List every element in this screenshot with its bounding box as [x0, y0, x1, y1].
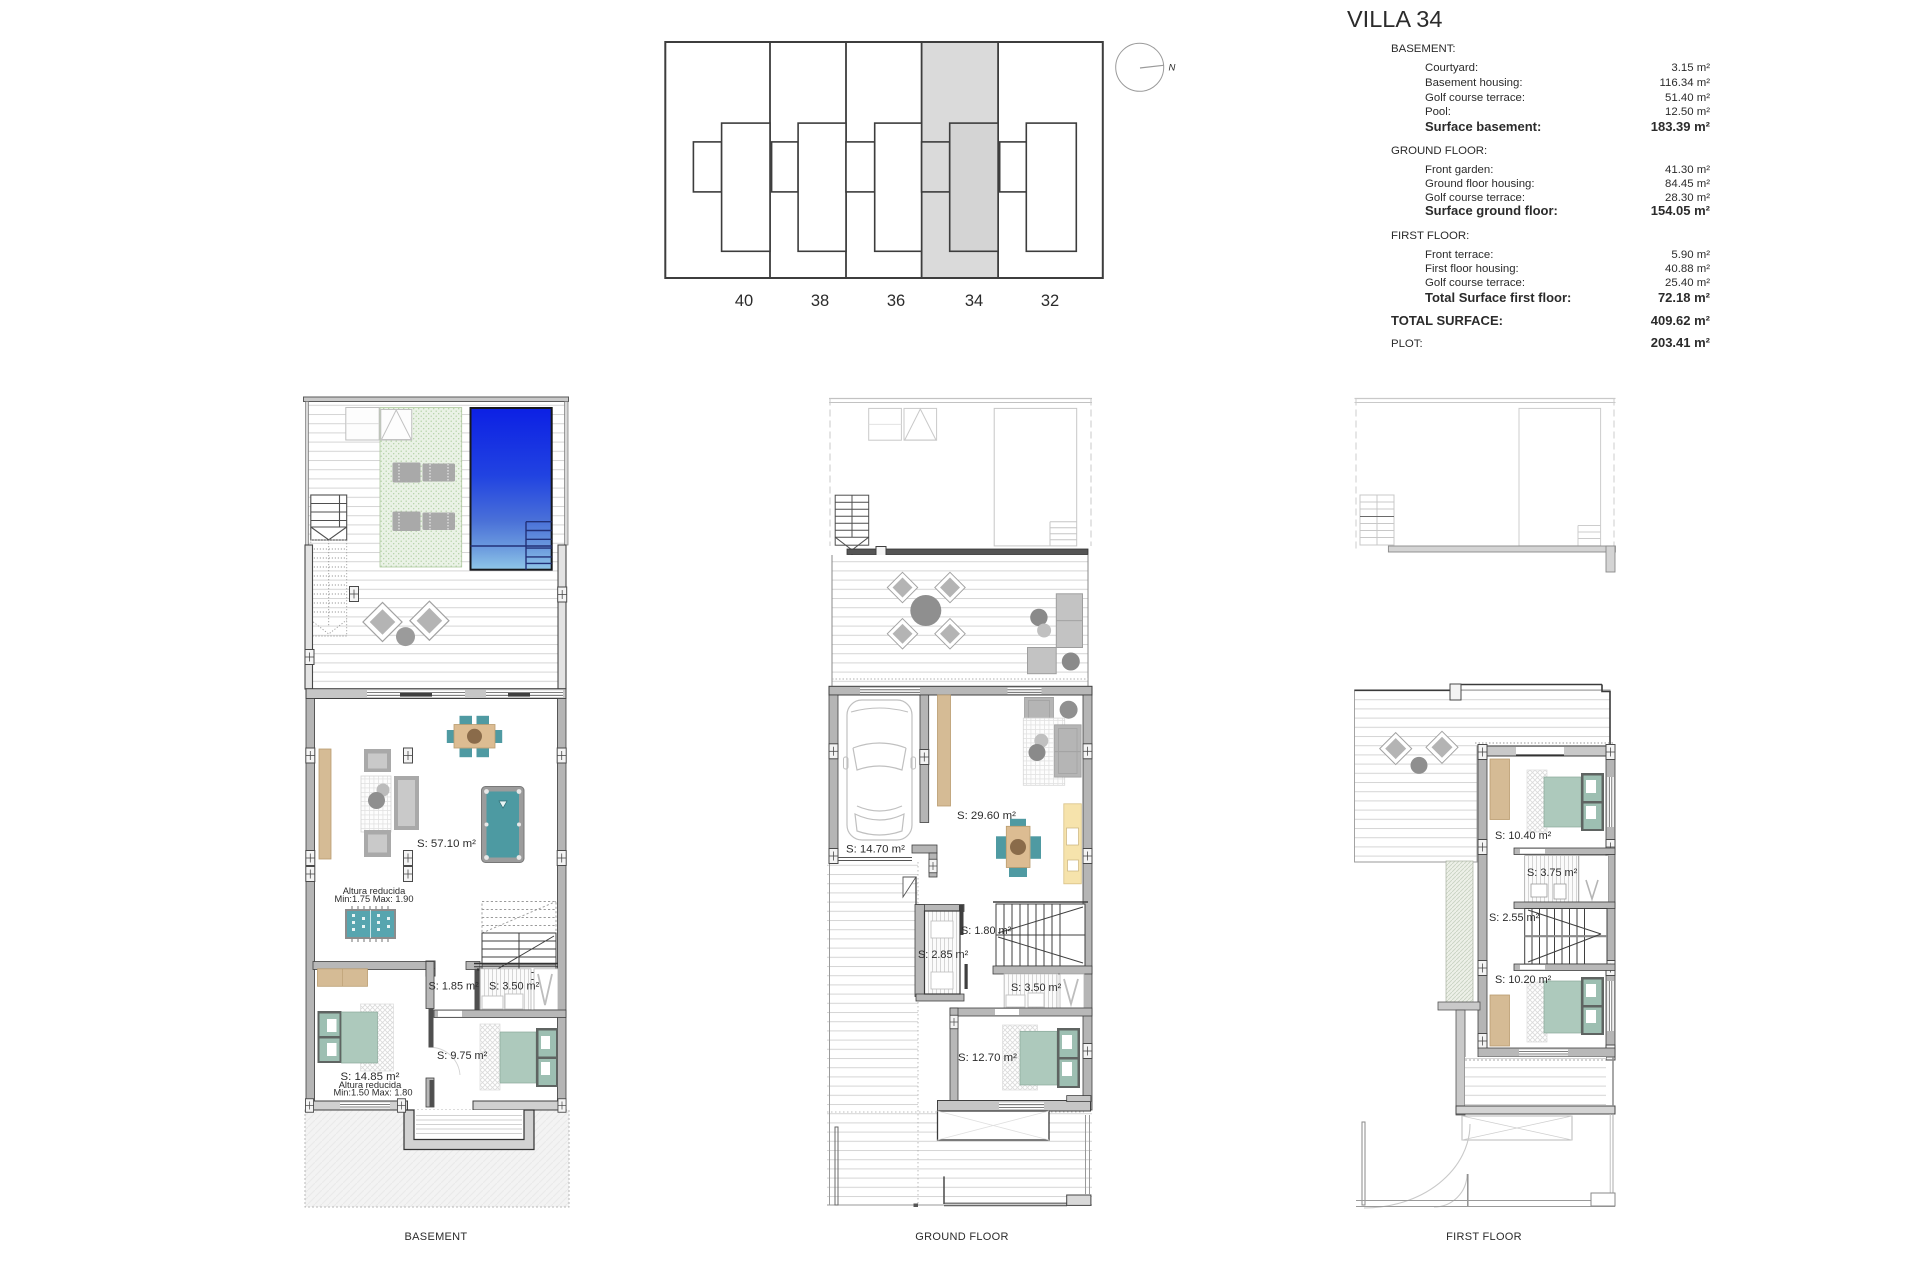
svg-text:Min:1.50 Max: 1.80: Min:1.50 Max: 1.80	[333, 1088, 412, 1098]
svg-text:34: 34	[965, 292, 983, 310]
svg-text:203.41 m²: 203.41 m²	[1651, 335, 1711, 350]
svg-text:N: N	[1169, 63, 1176, 74]
svg-text:40: 40	[735, 292, 753, 310]
svg-text:Surface basement:: Surface basement:	[1425, 119, 1541, 134]
svg-text:Golf course terrace:: Golf course terrace:	[1425, 92, 1525, 104]
svg-text:Pool:: Pool:	[1425, 106, 1451, 118]
svg-text:5.90 m²: 5.90 m²	[1671, 249, 1710, 261]
svg-text:Courtyard:: Courtyard:	[1425, 62, 1478, 74]
svg-text:32: 32	[1041, 292, 1059, 310]
svg-text:S: 9.75 m²: S: 9.75 m²	[437, 1050, 488, 1062]
svg-text:3.15 m²: 3.15 m²	[1671, 62, 1710, 74]
svg-text:Ground floor housing:: Ground floor housing:	[1425, 178, 1535, 190]
svg-text:GROUND FLOOR: GROUND FLOOR	[915, 1231, 1008, 1243]
svg-text:154.05 m²: 154.05 m²	[1651, 203, 1711, 218]
svg-text:409.62 m²: 409.62 m²	[1651, 313, 1711, 328]
svg-text:S: 3.75 m²: S: 3.75 m²	[1527, 867, 1578, 879]
svg-text:Surface ground floor:: Surface ground floor:	[1425, 203, 1558, 218]
svg-text:S: 2.55 m²: S: 2.55 m²	[1489, 912, 1540, 924]
svg-text:S: 3.50 m²: S: 3.50 m²	[1011, 982, 1062, 994]
svg-text:FIRST FLOOR:: FIRST FLOOR:	[1391, 230, 1469, 242]
svg-text:72.18 m²: 72.18 m²	[1658, 290, 1711, 305]
svg-text:S: 10.20 m²: S: 10.20 m²	[1495, 974, 1552, 986]
svg-text:36: 36	[887, 292, 905, 310]
svg-text:S: 14.70 m²: S: 14.70 m²	[846, 844, 905, 856]
svg-text:38: 38	[811, 292, 829, 310]
svg-text:BASEMENT: BASEMENT	[405, 1231, 468, 1243]
svg-text:Basement housing:: Basement housing:	[1425, 77, 1523, 89]
svg-text:12.50 m²: 12.50 m²	[1665, 106, 1710, 118]
svg-text:S: 2.85 m²: S: 2.85 m²	[918, 949, 969, 961]
svg-text:S: 12.70 m²: S: 12.70 m²	[958, 1052, 1017, 1064]
svg-text:183.39 m²: 183.39 m²	[1651, 119, 1711, 134]
svg-text:Front garden:: Front garden:	[1425, 164, 1493, 176]
svg-text:51.40 m²: 51.40 m²	[1665, 92, 1710, 104]
svg-text:S: 3.50 m²: S: 3.50 m²	[489, 981, 540, 993]
svg-text:25.40 m²: 25.40 m²	[1665, 277, 1710, 289]
svg-text:116.34 m²: 116.34 m²	[1660, 77, 1711, 89]
svg-text:S: 1.80 m²: S: 1.80 m²	[961, 925, 1012, 937]
svg-text:S: 1.85 m²: S: 1.85 m²	[429, 981, 480, 993]
svg-text:VILLA 34: VILLA 34	[1347, 6, 1442, 32]
svg-text:PLOT:: PLOT:	[1391, 338, 1423, 350]
svg-text:TOTAL SURFACE:: TOTAL SURFACE:	[1391, 313, 1503, 328]
svg-text:First floor housing:: First floor housing:	[1425, 263, 1519, 275]
svg-text:40.88 m²: 40.88 m²	[1665, 263, 1710, 275]
svg-text:Golf course terrace:: Golf course terrace:	[1425, 277, 1525, 289]
svg-text:Front terrace:: Front terrace:	[1425, 249, 1493, 261]
svg-text:84.45 m²: 84.45 m²	[1665, 178, 1710, 190]
svg-text:FIRST FLOOR: FIRST FLOOR	[1446, 1231, 1522, 1243]
svg-text:S: 10.40 m²: S: 10.40 m²	[1495, 830, 1552, 842]
svg-text:Min:1.75 Max: 1.90: Min:1.75 Max: 1.90	[334, 894, 413, 904]
svg-text:41.30 m²: 41.30 m²	[1665, 164, 1710, 176]
svg-text:GROUND FLOOR:: GROUND FLOOR:	[1391, 145, 1487, 157]
svg-text:BASEMENT:: BASEMENT:	[1391, 43, 1456, 55]
svg-text:Total Surface first floor:: Total Surface first floor:	[1425, 290, 1571, 305]
svg-text:S: 57.10 m²: S: 57.10 m²	[417, 838, 476, 850]
svg-text:S: 29.60 m²: S: 29.60 m²	[957, 810, 1016, 822]
